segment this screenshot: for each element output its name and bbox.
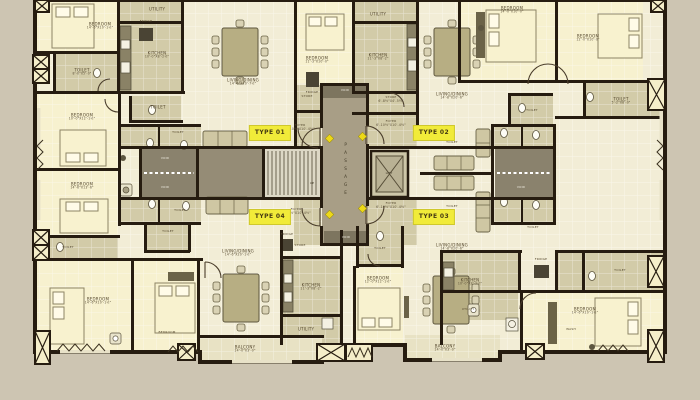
room-label-store-tl: STORE bbox=[301, 95, 312, 99]
room-label-bedroom-bl1: BEDROOM14'-6"X10'-1½" bbox=[85, 297, 112, 306]
room-label-toilet-tr2: TOILET bbox=[526, 109, 538, 113]
room-label-utility-bl: UTILITY bbox=[298, 327, 314, 332]
room-label-store-tr: STORE6'-8½"X4'-5½" bbox=[378, 96, 403, 104]
type-02-badge: TYPE 02 bbox=[413, 125, 455, 141]
room-label-toilet-bl1: TOILET bbox=[62, 246, 74, 250]
room-label-fridge-a: FRIDGE bbox=[140, 20, 152, 24]
room-label-store-bl: STORE bbox=[294, 244, 305, 248]
room-label-toilet-core-tr: TOILET bbox=[446, 141, 458, 145]
room-label-bedroom-tr1: BEDROOM14'-0"X10'-0" bbox=[500, 6, 523, 15]
room-label-toilet-tr1: TOILET5'-2"X8'-0" bbox=[612, 97, 631, 106]
lift-label: LIFT bbox=[386, 172, 393, 176]
room-label-bedroom-tl: BEDROOM14'-6"X10'-1½" bbox=[87, 22, 114, 31]
void-left-label-b: VOID bbox=[161, 186, 169, 190]
room-label-living-bl: LIVING/DINING14'-6"X20'-1½" bbox=[222, 249, 254, 258]
room-label-toilet-core-tl: TOILET bbox=[172, 131, 184, 135]
room-label-toilet-tl2: TOILET bbox=[150, 105, 165, 110]
room-label-foyer-tr: FOYER6'-10½"X10'-4½" bbox=[376, 120, 406, 128]
room-label-bedroom-tc: BEDROOM11'-3"X10'-0" bbox=[305, 56, 328, 65]
floor-plan-canvas bbox=[0, 0, 700, 400]
room-label-balcony-br: BALCONY14'-0"X3'-0" bbox=[434, 344, 455, 353]
room-label-foyer-br: FOYER6'-10½"X10'-4½" bbox=[376, 202, 406, 210]
type-01-badge: TYPE 01 bbox=[249, 125, 291, 141]
room-label-toilet-br-b: TOILET bbox=[527, 226, 539, 230]
stairs-up-label: UP bbox=[310, 182, 314, 186]
room-label-kitchen-tr: KITCHEN11'-3"X8'-2" bbox=[367, 53, 388, 62]
room-label-fridge-d: FRIDGE bbox=[535, 258, 547, 262]
room-label-kitchen-tl: KITCHEN10'-0"X8'-2½" bbox=[145, 51, 169, 60]
passage-label: PASSAGE bbox=[343, 142, 347, 198]
room-label-kitchen-br: KITCHEN10'-0"X8'-2½" bbox=[458, 278, 482, 287]
room-label-bedroom-bl2: BEDROOM bbox=[158, 331, 175, 335]
room-label-toilet-br2: TOILET bbox=[614, 269, 626, 273]
room-label-fridge-b: FRIDGE bbox=[306, 91, 318, 95]
room-label-fridge-c: FRIDGE bbox=[281, 233, 293, 237]
type-04-badge: TYPE 04 bbox=[249, 209, 291, 225]
room-label-toilet-core-bl: TOILET bbox=[174, 209, 186, 213]
room-label-utility-tl: UTILITY bbox=[149, 7, 165, 12]
stair-landing bbox=[199, 149, 262, 197]
room-label-utility-br: UTILITY bbox=[462, 308, 475, 312]
void-top-label: VOID bbox=[341, 89, 349, 93]
void-left-label-a: VOID bbox=[161, 157, 169, 161]
floor-plan: TYPE 01 TYPE 02 TYPE 04 TYPE 03 PASSAGE … bbox=[0, 0, 700, 400]
type-03-badge: TYPE 03 bbox=[413, 209, 455, 225]
room-label-wash-br: WASH bbox=[566, 328, 576, 332]
room-label-toilet-tl: TOILET8'-0"X5'-0" bbox=[73, 68, 92, 77]
room-label-toilet-br-a: TOILET bbox=[374, 247, 386, 251]
room-label-bedroom-l2: BEDROOM14'-6"X13'-6" bbox=[70, 182, 93, 191]
room-label-bedroom-tr2: BEDROOM12'-0"X10'-0" bbox=[576, 34, 599, 43]
room-label-bedroom-l1: BEDROOM10'-0"X12'-1½" bbox=[69, 113, 96, 122]
void-bottom-label: VOID bbox=[342, 236, 350, 240]
room-label-living-tr: LIVING/DINING14'-8"X20'-6" bbox=[436, 92, 468, 101]
room-label-living-tl: LIVING/DINING14'-6"X20'-7½" bbox=[227, 78, 259, 87]
room-label-utility-tr: UTILITY bbox=[370, 12, 386, 17]
room-label-bedroom-br1: BEDROOM12'-0"X12'-1½" bbox=[365, 276, 392, 285]
room-label-balcony-bl: BALCONY14'-0"X3'-0" bbox=[234, 345, 255, 354]
void-right-label: VOID bbox=[517, 186, 525, 190]
room-label-kitchen-bl: KITCHEN11'-3"X8'-2" bbox=[300, 283, 321, 292]
room-label-living-br: LIVING/DINING14'-8"X20'-6" bbox=[436, 243, 468, 252]
room-label-bedroom-br2: BEDROOM14'-6"X10'-1½" bbox=[572, 307, 599, 316]
room-label-toilet-bl2: TOILET bbox=[162, 230, 174, 234]
